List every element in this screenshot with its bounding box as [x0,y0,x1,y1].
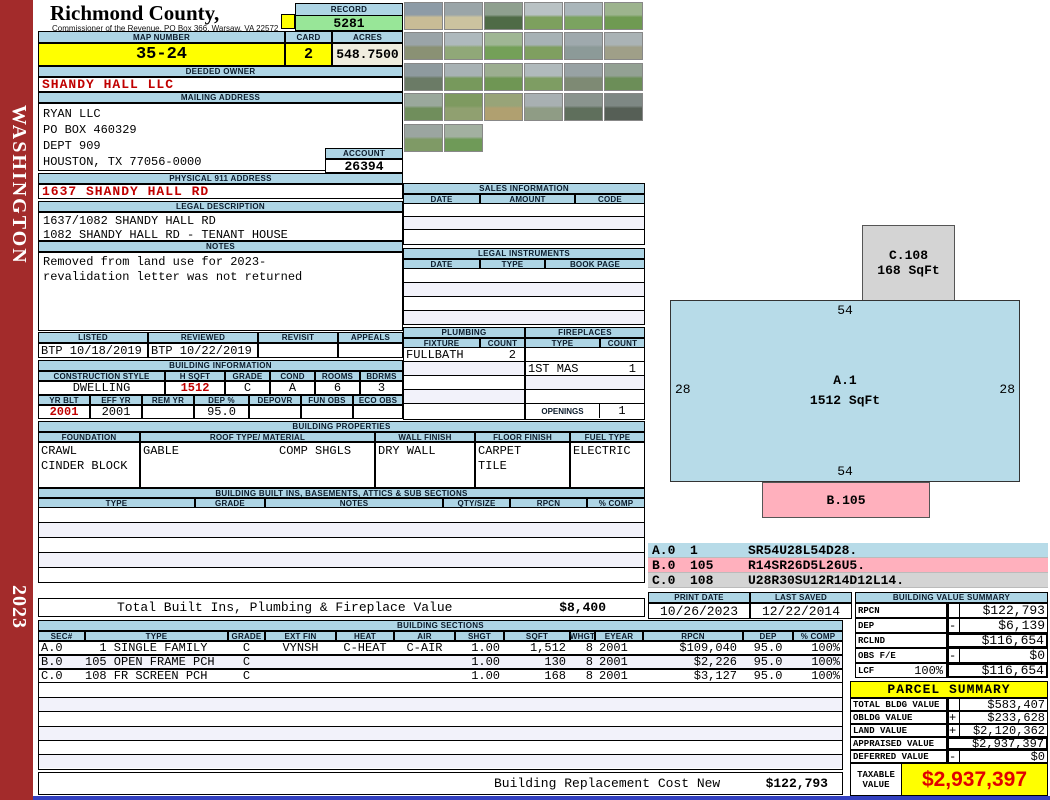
acres-value: 548.7500 [332,43,403,66]
sections-col-sec: SEC# [38,631,85,641]
last-saved-value: 12/22/2014 [750,603,852,619]
legal-description-block: 1637/1082 SHANDY HALL RD 1082 SHANDY HAL… [38,212,403,241]
parcel-row-value: $583,407 [960,698,1048,711]
parcel-row-label: TOTAL BLDG VALUE [850,698,947,711]
property-photo[interactable] [564,93,603,121]
bdrms-label: BDRMS [360,371,403,381]
built-ins-col-qty: QTY/SIZE [443,498,510,508]
empty-row [39,712,842,727]
parcel-summary-table: TOTAL BLDG VALUE $583,407 OBLDG VALUE + … [850,698,1048,796]
taxable-value-amount: $2,937,397 [902,763,1048,796]
sales-empty-rows [403,204,645,245]
notes-block: Removed from land use for 2023- revalida… [38,252,403,331]
legend-row-b: B.0 105 R14SR26D5L26U5. [648,558,1048,573]
sections-col-extfin: EXT FIN [265,631,336,641]
building-sketch: C.108 168 SqFt 54 54 28 28 A.1 1512 SqFt… [648,185,1048,540]
built-ins-col-comp: % COMP [587,498,645,508]
table-row: FULLBATH 2 [404,348,524,362]
sketch-section-a-sqft: 1512 SqFt [671,393,1019,408]
legal-instruments-label: LEGAL INSTRUMENTS [403,248,645,259]
cond-label: COND [270,371,315,381]
bvs-row-value: $116,654 [960,633,1048,648]
legal-description-line-2: 1082 SHANDY HALL RD - TENANT HOUSE [43,228,402,242]
yrblt-value: 2001 [38,405,90,419]
property-photo[interactable] [604,32,643,60]
bvs-row-value: $122,793 [960,603,1048,618]
property-photo[interactable] [404,32,443,60]
property-photo[interactable] [484,32,523,60]
appeals-label: APPEALS [338,332,403,343]
property-photo[interactable] [404,93,443,121]
hsqft-value: 1512 [165,381,225,395]
roof-label: ROOF TYPE/ MATERIAL [140,432,375,442]
empty-row [404,217,644,230]
openings-label: OPENINGS [526,407,599,416]
property-photo[interactable] [524,2,563,30]
legend-row-c: C.0 108 U28R30SU12R14D12L14. [648,573,1048,588]
sections-col-air: AIR [394,631,455,641]
empty-row [404,362,524,376]
sections-col-shgt: SHGT [455,631,504,641]
remyr-value [142,405,194,419]
building-sections-label: BUILDING SECTIONS [38,620,843,631]
empty-row [404,269,644,283]
yellow-key-swatch [281,14,295,29]
notes-line-2: revalidation letter was not returned [43,270,402,285]
sketch-section-c-id: C.108 [889,248,928,263]
notes-label: NOTES [38,241,403,252]
notes-line-1: Removed from land use for 2023- [43,255,402,270]
empty-row [404,283,644,297]
dep-pct-label: DEP % [194,395,249,405]
sales-col-date: DATE [403,194,480,204]
reviewed-value: BTP 10/22/2019 [148,343,258,358]
fireplaces-rows: 1ST MAS 1 OPENINGS 1 [525,348,645,420]
empty-row [404,376,524,390]
depovr-label: DEPOVR [249,395,301,405]
property-photo[interactable] [484,63,523,91]
empty-row [39,683,842,698]
sections-col-type: TYPE [85,631,228,641]
plumbing-label: PLUMBING [403,327,525,338]
dep-pct-value: 95.0 [194,405,249,419]
empty-row [404,204,644,217]
account-number: 26394 [325,159,403,173]
empty-row [39,508,644,523]
parcel-row-value: $2,937,397 [947,737,1048,750]
sketch-section-b-id: B.105 [826,493,865,508]
property-photo[interactable] [524,63,563,91]
grade-value: C [225,381,270,395]
hsqft-label: H SQFT [165,371,225,381]
parcel-row-value: $233,628 [960,711,1048,724]
sketch-dim-bottom: 54 [671,464,1019,479]
property-photo[interactable] [564,2,603,30]
print-date-value: 10/26/2023 [648,603,750,619]
total-built-ins-row: Total Built Ins, Plumbing & Fireplace Va… [38,598,645,617]
built-ins-col-grade: GRADE [195,498,265,508]
table-row: C.0 108 FR SCREEN PCH C 1.00 168 8 2001 … [38,669,843,683]
last-saved-label: LAST SAVED [750,592,852,603]
taxable-value-label: TAXABLE VALUE [850,763,902,796]
legal-description-label: LEGAL DESCRIPTION [38,201,403,212]
fireplace-type-value: 1ST MAS [526,362,578,376]
roof-value: GABLECOMP SHGLS [140,442,375,488]
property-photo[interactable] [444,2,483,30]
appeals-value [338,343,403,358]
property-photo[interactable] [524,93,563,121]
map-number-value: 35-24 [38,43,285,66]
bvs-row-value: $6,139 [960,618,1048,633]
card-number-value: 2 [285,43,332,66]
empty-row [39,523,644,538]
remyr-label: REM YR [142,395,194,405]
total-built-ins-value: $8,400 [559,600,606,615]
bdrms-value: 3 [360,381,403,395]
ecoobs-label: ECO OBS [353,395,403,405]
parcel-row-label: LAND VALUE [850,724,947,737]
mailing-line-1: RYAN LLC [43,106,402,122]
sales-col-code: CODE [575,194,645,204]
fireplaces-label: FIREPLACES [525,327,645,338]
table-row: A.0 1 SINGLE FAMILY C VYNSH C-HEAT C-AIR… [38,641,843,655]
account-label: ACCOUNT [325,148,403,159]
wall-finish-label: WALL FINISH [375,432,475,442]
sections-col-eyear: EYEAR [595,631,643,641]
empty-row [526,348,644,362]
built-ins-col-type: TYPE [38,498,195,508]
plumbing-fixture-value: FULLBATH [404,348,464,362]
table-row: B.0 105 OPEN FRAME PCH C 1.00 130 8 2001… [38,655,843,669]
empty-row [526,376,644,390]
building-sections-empty-rows [38,683,843,770]
rooms-value: 6 [315,381,360,395]
building-properties-label: BUILDING PROPERTIES [38,421,645,432]
property-photo[interactable] [604,63,643,91]
fireplace-count-value: 1 [629,362,644,376]
mailing-address-label: MAILING ADDRESS [38,92,403,103]
wall-finish-value: DRY WALL [375,442,475,488]
empty-row [526,390,644,404]
print-date-label: PRINT DATE [648,592,750,603]
sketch-section-c: C.108 168 SqFt [862,225,955,301]
empty-row [404,311,644,324]
property-photo[interactable] [604,93,643,121]
physical-address-value: 1637 SHANDY HALL RD [38,184,403,199]
bvs-row-label: OBS F/E [855,648,947,663]
empty-row [39,698,842,712]
built-ins-col-notes: NOTES [265,498,443,508]
fuel-type-value: ELECTRIC [570,442,645,488]
property-photo[interactable] [524,32,563,60]
cond-value: A [270,381,315,395]
instruments-col-date: DATE [403,259,480,269]
listed-label: LISTED [38,332,148,343]
spine-year-label: 2023 [4,585,30,675]
openings-count: 1 [599,404,644,418]
bvs-row-label: DEP [855,618,947,633]
plumbing-count-value: 2 [509,348,524,362]
deeded-owner-label: DEEDED OWNER [38,66,403,77]
property-photo[interactable] [564,63,603,91]
property-record-card: WASHINGTON 2023 Richmond County, Virgini… [0,0,1050,800]
building-value-summary-table: RPCN $122,793 DEP - $6,139 RCLND $116,65… [855,603,1048,678]
grade-label: GRADE [225,371,270,381]
bvs-row-value: $116,654 [960,663,1048,678]
revisit-value [258,343,338,358]
sketch-section-a-id: A.1 [671,373,1019,388]
built-ins-label: BUILDING BUILT INS, BASEMENTS, ATTICS & … [38,488,645,498]
parcel-row-value: $0 [960,750,1048,763]
legal-description-line-1: 1637/1082 SHANDY HALL RD [43,214,402,228]
sections-col-rpcn: RPCN [643,631,743,641]
sketch-section-b: B.105 [762,482,930,518]
replacement-cost-label: Building Replacement Cost New [494,776,720,791]
property-photo[interactable] [444,32,483,60]
record-number: 5281 [295,15,403,31]
sketch-section-c-sqft: 168 SqFt [877,263,939,278]
empty-row [404,390,524,404]
instruments-empty-rows [403,269,645,325]
property-photo[interactable] [484,93,523,121]
depovr-value [249,405,301,419]
effyr-value: 2001 [90,405,142,419]
listed-value: BTP 10/18/2019 [38,343,148,358]
property-photo[interactable] [404,2,443,30]
parcel-row-label: APPRAISED VALUE [850,737,947,750]
mailing-line-2: PO BOX 460329 [43,122,402,138]
bvs-row-label: RCLND [855,633,947,648]
plumbing-col-fixture: FIXTURE [403,338,480,348]
property-photo[interactable] [444,63,483,91]
property-photo[interactable] [404,63,443,91]
instruments-col-type: TYPE [480,259,545,269]
reviewed-label: REVIEWED [148,332,258,343]
map-number-label: MAP NUMBER [38,31,285,43]
funobs-value [301,405,353,419]
sketch-dim-top: 54 [671,303,1019,318]
sketch-legend: A.0 1 SR54U28L54D28. B.0 105 R14SR26D5L2… [648,543,1048,588]
property-photo[interactable] [604,2,643,30]
fireplaces-col-count: COUNT [600,338,645,348]
empty-row [39,727,842,741]
revisit-label: REVISIT [258,332,338,343]
empty-row [404,297,644,311]
construction-style-label: CONSTRUCTION STYLE [38,371,165,381]
foundation-label: FOUNDATION [38,432,140,442]
yrblt-label: YR BLT [38,395,90,405]
effyr-label: EFF YR [90,395,142,405]
sections-col-grade: GRADE [228,631,265,641]
empty-row [404,404,524,418]
sections-col-sqft: SQFT [504,631,570,641]
spine-sidebar: WASHINGTON 2023 [0,0,33,800]
plumbing-col-count: COUNT [480,338,525,348]
property-photo[interactable] [404,124,443,152]
legend-row-a: A.0 1 SR54U28L54D28. [648,543,1048,558]
parcel-row-value: $2,120,362 [960,724,1048,737]
photo-grid [404,2,646,152]
sales-information-label: SALES INFORMATION [403,183,645,194]
spine-region-label: WASHINGTON [4,105,30,365]
deeded-owner-name: SHANDY HALL LLC [38,77,403,92]
building-information-label: BUILDING INFORMATION [38,360,403,371]
property-photo[interactable] [564,32,603,60]
fuel-type-label: FUEL TYPE [570,432,645,442]
replacement-cost-value: $122,793 [766,776,828,791]
built-ins-col-rpcn: RPCN [510,498,587,508]
built-ins-empty-rows [38,508,645,583]
sketch-section-a: 54 54 28 28 A.1 1512 SqFt [670,300,1020,482]
bvs-row-label: LCF100% [855,663,947,678]
ecoobs-value [353,405,403,419]
sections-col-heat: HEAT [336,631,394,641]
card-label: CARD [285,31,332,43]
property-photo[interactable] [444,124,483,152]
bvs-row-value: $0 [960,648,1048,663]
foundation-value: CRAWLCINDER BLOCK [38,442,140,488]
table-row: 1ST MAS 1 [526,362,644,376]
parcel-row-label: DEFERRED VALUE [850,750,947,763]
building-value-summary-label: BUILDING VALUE SUMMARY [855,592,1048,603]
empty-row [39,568,644,582]
parcel-row-label: OBLDG VALUE [850,711,947,724]
sections-col-comp: % COMP [793,631,843,641]
construction-style-value: DWELLING [38,381,165,395]
floor-finish-label: FLOOR FINISH [475,432,570,442]
total-built-ins-label: Total Built Ins, Plumbing & Fireplace Va… [117,600,452,615]
property-photo[interactable] [484,2,523,30]
instruments-col-bookpage: BOOK PAGE [545,259,645,269]
rooms-label: ROOMS [315,371,360,381]
replacement-cost-row: Building Replacement Cost New $122,793 [38,772,843,795]
fireplaces-col-type: TYPE [525,338,600,348]
empty-row [404,230,644,243]
empty-row [39,538,644,553]
property-photo[interactable] [444,93,483,121]
acres-label: ACRES [332,31,403,43]
sections-col-whgt: WHGT [570,631,595,641]
bvs-row-label: RPCN [855,603,947,618]
funobs-label: FUN OBS [301,395,353,405]
parcel-summary-label: PARCEL SUMMARY [850,681,1048,698]
fireplace-openings-row: OPENINGS 1 [526,404,644,418]
floor-finish-value: CARPETTILE [475,442,570,488]
empty-row [39,741,842,755]
bottom-border-strip [33,796,1050,800]
empty-row [39,553,644,568]
plumbing-rows: FULLBATH 2 [403,348,525,420]
empty-row [39,755,842,768]
sections-col-dep: DEP [743,631,793,641]
sales-col-amount: AMOUNT [480,194,575,204]
physical-address-label: PHYSICAL 911 ADDRESS [38,173,403,184]
